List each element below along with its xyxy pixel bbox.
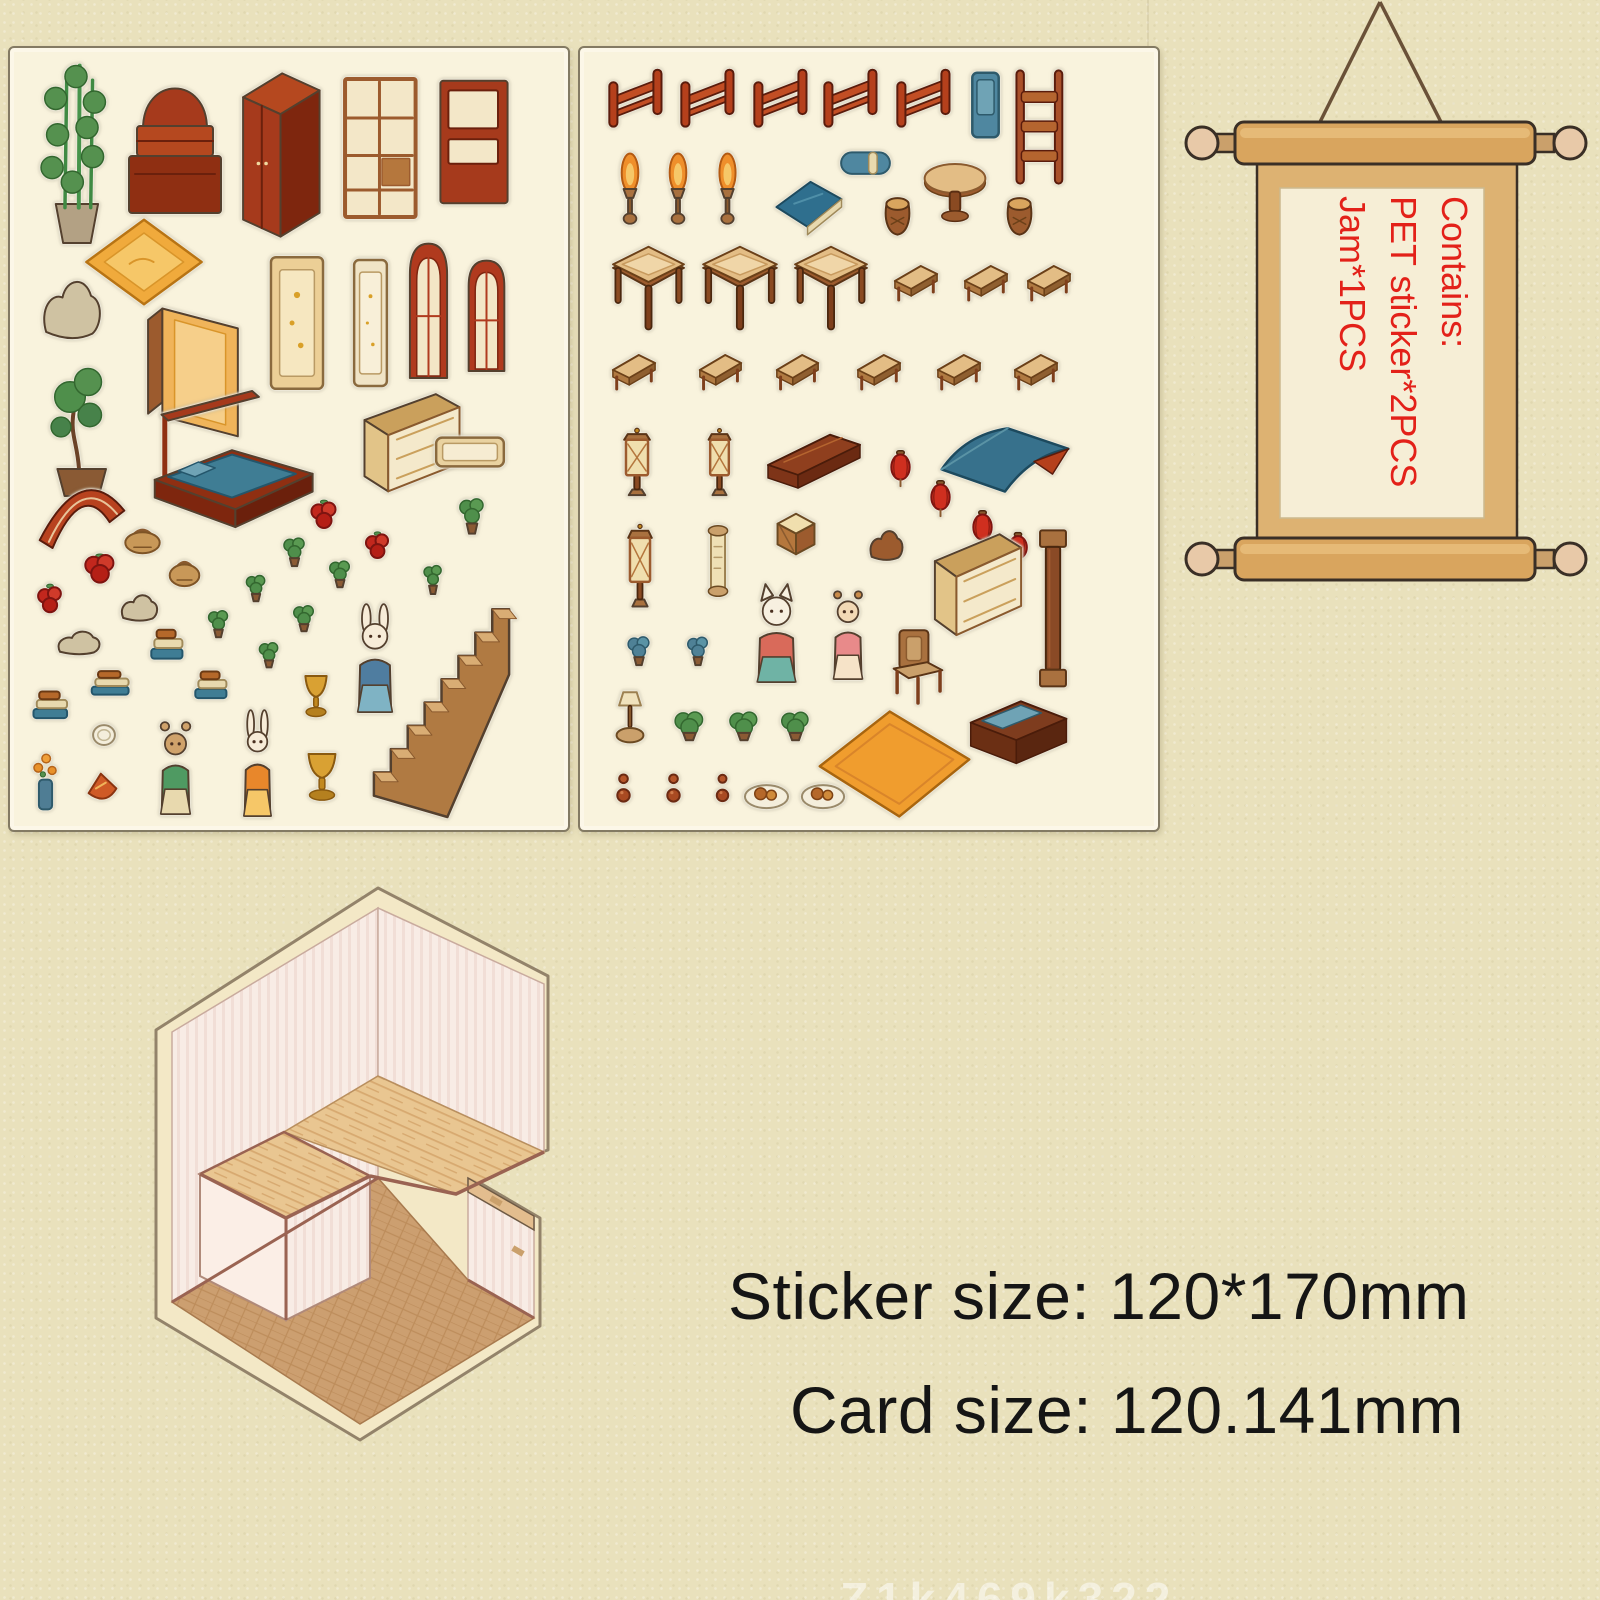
sticker-canopy-bed <box>148 388 316 536</box>
sticker-altar-cabinet <box>125 66 225 216</box>
sticker-potted-plant-1 <box>453 488 491 536</box>
sticker-flower-vase <box>29 748 62 814</box>
sticker-torch-lamp-2 <box>662 152 694 226</box>
scroll-knob-top-right <box>1554 127 1586 159</box>
sticker-gourd-3 <box>710 765 735 811</box>
room-card <box>60 850 700 1490</box>
sticker-stand-lantern-3 <box>619 522 661 610</box>
sticker-pale-screen <box>351 256 390 390</box>
sticker-staircase <box>368 586 515 819</box>
sticker-railing-4 <box>822 66 880 140</box>
scroll-line-2: PET sticker*2PCS <box>1378 196 1429 518</box>
sticker-bench-1 <box>892 260 940 310</box>
sticker-bench-9 <box>1012 349 1060 399</box>
sticker-potted-plant-4 <box>241 568 271 603</box>
sticker-wood-joint <box>867 524 906 566</box>
sticker-shelf-board <box>764 429 864 501</box>
sticker-open-shelf <box>434 74 514 210</box>
sticker-torch-lamp-1 <box>614 152 646 226</box>
sticker-rabbit-figure-orange <box>233 709 282 818</box>
sticker-book-stack-3 <box>89 668 134 699</box>
scroll-knob-bottom-right <box>1554 543 1586 575</box>
sticker-small-rock-1 <box>118 589 161 626</box>
sticker-potted-plant-3 <box>324 554 356 589</box>
scroll-knob-top-left <box>1186 127 1218 159</box>
sticker-red-food <box>86 769 119 808</box>
sticker-blue-blanket <box>772 174 846 240</box>
sticker-railing-3 <box>752 66 810 140</box>
sticker-green-plant-2 <box>722 707 766 742</box>
sticker-cushion-bench <box>957 680 1071 777</box>
scroll-knob-bottom-left <box>1186 543 1218 575</box>
sticker-book-stack-1 <box>149 626 187 664</box>
scroll-text: Contains: PET sticker*2PCS Jam*1PCS <box>1280 188 1484 518</box>
sticker-fan-window <box>36 468 128 550</box>
sticker-basket-2 <box>166 553 203 589</box>
sticker-square-table-1 <box>610 245 687 333</box>
sticker-food-plate-2 <box>799 775 847 811</box>
scroll-text-panel: Contains: PET sticker*2PCS Jam*1PCS <box>1280 188 1484 518</box>
sticker-railing-2 <box>679 66 737 140</box>
sticker-crate <box>775 512 817 557</box>
sticker-bench-5 <box>697 349 744 399</box>
sticker-square-table-3 <box>792 245 870 333</box>
scroll-string-left <box>1318 2 1380 126</box>
sticker-red-wardrobe <box>238 70 323 240</box>
sticker-bear-figure <box>149 713 202 816</box>
watermark-text: Z1k469k322 <box>840 1572 1178 1600</box>
sticker-lattice-shelf <box>340 73 424 223</box>
sticker-stand-lantern-2 <box>700 427 739 498</box>
sticker-gold-trophy-2 <box>298 746 346 803</box>
sticker-size-text: Sticker size: 120*170mm <box>728 1258 1469 1334</box>
sticker-bolster-pillow <box>839 145 892 182</box>
sticker-torch-lamp-3 <box>712 152 743 226</box>
sticker-armchair <box>889 627 947 707</box>
sticker-plaque <box>434 428 506 476</box>
sticker-green-plant-1 <box>667 707 712 742</box>
sticker-potted-plant-2 <box>278 530 311 568</box>
sticker-potted-plant-6 <box>288 599 320 633</box>
sticker-gourd-2 <box>660 765 687 811</box>
sticker-red-fruit-4 <box>33 580 67 618</box>
scroll-line-3: Jam*1PCS <box>1327 196 1378 518</box>
sticker-bench-8 <box>935 349 983 399</box>
scroll-line-1: Contains: <box>1429 196 1480 518</box>
sticker-sheet-1 <box>8 46 570 832</box>
sticker-blue-plant-2 <box>682 629 714 667</box>
sticker-food-plate-1 <box>742 775 791 811</box>
sticker-red-lantern-1 <box>887 450 914 488</box>
sticker-drum-stool-1 <box>882 195 913 240</box>
sticker-square-table-2 <box>700 245 780 333</box>
sticker-gold-screen <box>266 253 328 393</box>
sticker-bench-7 <box>855 349 903 399</box>
sticker-basket-1 <box>121 521 164 556</box>
sticker-arch-window-1 <box>404 238 453 380</box>
page-background: Contains: PET sticker*2PCS Jam*1PCS <box>0 0 1600 1600</box>
sticker-railing-5 <box>895 66 953 140</box>
sticker-bench-3 <box>1025 260 1073 310</box>
scroll-string-right <box>1380 2 1442 124</box>
sticker-arch-window-2 <box>463 256 510 373</box>
sticker-gold-trophy-1 <box>297 669 335 719</box>
sticker-book-stack-2 <box>193 668 231 703</box>
hanging-scroll: Contains: PET sticker*2PCS Jam*1PCS <box>1140 0 1600 625</box>
sticker-green-plant-3 <box>774 707 817 742</box>
sticker-ladder-rack <box>1009 68 1071 186</box>
sticker-potted-plant-7 <box>254 636 284 669</box>
sticker-incense-stand <box>609 689 651 744</box>
sticker-stand-lantern-1 <box>614 427 660 498</box>
sticker-round-table <box>922 160 988 226</box>
sticker-drum-stool-2 <box>1004 195 1035 240</box>
sticker-book-stack-4 <box>31 688 72 723</box>
sticker-cat-figure <box>742 580 811 684</box>
sticker-bench-6 <box>774 349 821 399</box>
sticker-bamboo-plant <box>30 62 122 244</box>
sticker-railing-1 <box>607 66 665 140</box>
sticker-red-fruit-2 <box>361 528 394 563</box>
sticker-garden-rock <box>38 268 106 350</box>
sticker-sheet-2 <box>578 46 1160 832</box>
sticker-plate <box>91 718 117 749</box>
sticker-bench-4 <box>610 349 658 399</box>
sticker-blue-plant-1 <box>622 629 656 667</box>
sticker-potted-plant-5 <box>203 603 234 639</box>
sticker-bench-2 <box>962 260 1010 310</box>
sticker-blue-roof <box>939 422 1071 501</box>
sticker-gourd-1 <box>610 765 637 811</box>
sticker-scroll-piece <box>702 525 734 597</box>
sticker-blue-door <box>969 70 1002 140</box>
card-size-text: Card size: 120.141mm <box>790 1372 1464 1448</box>
sticker-red-fruit-3 <box>79 550 121 586</box>
sticker-girl-figure <box>822 582 874 681</box>
sticker-small-rock-2 <box>54 626 104 659</box>
sticker-red-fruit-1 <box>306 496 342 533</box>
sticker-pillar <box>1035 527 1071 693</box>
